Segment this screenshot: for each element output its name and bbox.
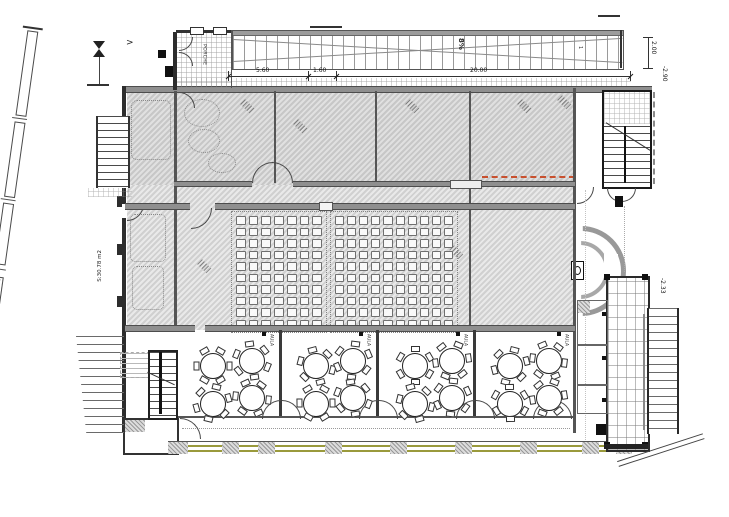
auditorium-seat: [432, 308, 441, 317]
service-hatch: [578, 301, 590, 313]
auditorium-seat: [261, 308, 271, 317]
boundary-wall-segment: [0, 203, 14, 266]
auditorium-seat: [420, 262, 429, 271]
wall-left-pilaster: [117, 296, 123, 307]
auditorium-seat: [236, 239, 246, 248]
service-room: [577, 384, 608, 414]
dim-porch-width: 5.60: [256, 68, 269, 74]
auditorium-seat: [287, 297, 297, 306]
ramp-top-edge: [233, 31, 623, 36]
auditorium-seat: [420, 239, 429, 248]
auditorium-seat: [274, 274, 284, 283]
chair: [232, 391, 239, 401]
stair-flight-dashed: [120, 352, 150, 378]
auditorium-seat: [300, 297, 310, 306]
dim-ramp-width: 2.00: [650, 41, 656, 54]
stair-area-label: S:30.78 m2: [98, 250, 104, 282]
auditorium-seat: [261, 251, 271, 260]
auditorium-seat: [274, 262, 284, 271]
classroom-label-marker: [456, 332, 460, 336]
auditorium-seat: [300, 274, 310, 283]
auditorium-seat: [359, 285, 368, 294]
boundary-gravel-segment: [0, 276, 4, 335]
auditorium-seat: [420, 228, 429, 237]
ramp-note: 1: [577, 46, 582, 49]
ramp: [232, 30, 624, 70]
auditorium-seat: [287, 239, 297, 248]
chair: [226, 361, 232, 370]
chair: [193, 361, 199, 370]
auditorium-seat: [383, 216, 392, 225]
auditorium-seat: [236, 274, 246, 283]
wall-hall-north-c: [331, 203, 575, 210]
facade-pillar: [168, 442, 188, 454]
auditorium-seat: [420, 308, 429, 317]
porch-left-wall: [173, 32, 177, 90]
classroom-label-marker: [359, 332, 363, 336]
round-table: [239, 348, 265, 374]
auditorium-seat: [396, 262, 405, 271]
overline-mark: [310, 26, 342, 28]
auditorium-seat: [396, 274, 405, 283]
chair: [529, 354, 536, 364]
auditorium-seat: [444, 239, 453, 248]
stair-bottom-left-stringer: [159, 352, 162, 414]
auditorium-seat: [274, 285, 284, 294]
overline-mark: [598, 15, 620, 17]
furniture-outline: [131, 100, 171, 160]
auditorium-seat: [236, 216, 246, 225]
facade-pillar: [455, 442, 472, 454]
survey-stem: [99, 57, 100, 85]
auditorium-seat: [335, 285, 344, 294]
auditorium-seat: [359, 262, 368, 271]
chair: [505, 383, 514, 389]
auditorium-seat: [359, 308, 368, 317]
furniture-outline: [208, 153, 236, 173]
chair: [415, 415, 425, 423]
stair-top-right: [602, 90, 652, 189]
auditorium-seat: [261, 274, 271, 283]
facade-pillar: [222, 442, 239, 454]
survey-base: [87, 84, 109, 86]
dimension-line: [228, 76, 630, 77]
auditorium-seat: [408, 262, 417, 271]
hall-double-door-leaf: [319, 202, 333, 211]
auditorium-seat: [371, 285, 380, 294]
auditorium-seat: [287, 251, 297, 260]
auditorium-seat: [383, 297, 392, 306]
auditorium-seat: [420, 274, 429, 283]
level-walkway: -2.33: [659, 278, 665, 294]
stair-landing: [604, 92, 650, 124]
classroom-label: AULA: [563, 334, 568, 346]
auditorium-seat: [236, 251, 246, 260]
auditorium-seat: [300, 251, 310, 260]
corridor-centerline: [182, 428, 570, 429]
boundary-joint-tick: [0, 267, 6, 270]
auditorium-seat: [249, 216, 259, 225]
auditorium-seat: [335, 262, 344, 271]
chair: [446, 411, 456, 418]
auditorium-seat: [444, 308, 453, 317]
facade-pillar: [258, 442, 275, 454]
auditorium-seat: [335, 239, 344, 248]
auditorium-seat: [420, 285, 429, 294]
auditorium-seat: [371, 262, 380, 271]
auditorium-seat: [274, 228, 284, 237]
auditorium-seat: [287, 262, 297, 271]
chair: [346, 378, 356, 385]
porch-window: [190, 27, 204, 35]
wall-hall-south-b: [205, 325, 575, 332]
auditorium-seat: [347, 228, 356, 237]
auditorium-seat: [359, 251, 368, 260]
walkway-base: [604, 444, 648, 449]
wall-hall-north-a: [125, 203, 190, 210]
porch-label: PORCHE: [201, 44, 206, 66]
auditorium-seat: [408, 239, 417, 248]
auditorium-seat: [261, 216, 271, 225]
lobby-door-tag: [615, 196, 623, 207]
auditorium-seat: [312, 262, 322, 271]
auditorium-seat: [312, 285, 322, 294]
auditorium-seat: [408, 274, 417, 283]
auditorium-seat: [249, 274, 259, 283]
auditorium-seat: [236, 308, 246, 317]
auditorium-seat: [444, 251, 453, 260]
auditorium-seat: [420, 251, 429, 260]
wall-hall-north-b: [215, 203, 320, 210]
auditorium-seat: [359, 274, 368, 283]
auditorium-seat: [420, 297, 429, 306]
dim-ramp-length: 20.00: [470, 68, 487, 74]
auditorium-seat: [432, 216, 441, 225]
wall-rooms-south-a: [174, 181, 252, 187]
lobby-guideline: [624, 206, 625, 272]
walkway-corner: [604, 274, 610, 280]
chair: [265, 395, 272, 405]
auditorium-seat: [261, 262, 271, 271]
chair: [465, 353, 472, 363]
site-boundary: [0, 26, 42, 517]
classroom-label: AULA: [268, 334, 273, 346]
auditorium-seat: [300, 308, 310, 317]
auditorium-seat: [312, 274, 322, 283]
walkway-corner: [642, 274, 648, 280]
level-ramp-base: -2.90: [661, 66, 667, 82]
auditorium-seat: [287, 308, 297, 317]
auditorium-seat: [396, 285, 405, 294]
auditorium-seat: [300, 285, 310, 294]
stair-upper-left: [96, 116, 130, 188]
auditorium-seat: [335, 216, 344, 225]
auditorium-seat: [359, 228, 368, 237]
stair-bottom-right: [647, 308, 679, 434]
door-recess: [450, 180, 482, 189]
auditorium-seat: [396, 297, 405, 306]
auditorium-seat: [347, 308, 356, 317]
stair-enclosure-ties: [650, 92, 655, 184]
classroom-label-marker: [557, 332, 561, 336]
auditorium-seat: [371, 228, 380, 237]
auditorium-seat: [236, 262, 246, 271]
floor-plan-canvas: PORCHE 8% 1 5.60 1.60 20.00 2.00 -2.90: [0, 0, 729, 517]
auditorium-seat: [408, 308, 417, 317]
auditorium-seat: [444, 297, 453, 306]
auditorium-seat: [335, 308, 344, 317]
auditorium-seat: [274, 297, 284, 306]
chair: [249, 373, 259, 380]
auditorium-seat: [261, 297, 271, 306]
stair-bottom-right-rail: [643, 314, 645, 430]
facade-pillar: [325, 442, 342, 454]
auditorium-seat: [312, 228, 322, 237]
auditorium-seat: [383, 308, 392, 317]
chair: [529, 396, 536, 406]
auditorium-seat: [383, 285, 392, 294]
auditorium-seat: [444, 262, 453, 271]
porch-tag: [158, 50, 166, 58]
porch-window: [213, 27, 227, 35]
auditorium-seat: [432, 251, 441, 260]
auditorium-seat: [347, 262, 356, 271]
classroom-label-marker: [262, 332, 266, 336]
auditorium-seat: [261, 285, 271, 294]
auditorium-seat: [359, 297, 368, 306]
auditorium-seat: [347, 251, 356, 260]
auditorium-seat: [261, 228, 271, 237]
auditorium-seat: [408, 297, 417, 306]
stage-outline: [132, 266, 164, 310]
wall-rooms-south-c: [480, 181, 575, 187]
partition-room3-hall: [469, 91, 471, 330]
facade-pillar: [582, 442, 599, 454]
furniture-outline: [188, 129, 220, 153]
auditorium-seat: [347, 274, 356, 283]
wall-left-pilaster: [117, 244, 123, 255]
auditorium-seat: [444, 274, 453, 283]
stair-wide-exterior: [76, 336, 124, 436]
dim-cap: [643, 68, 653, 69]
chair: [204, 415, 214, 423]
auditorium-seat-block-left: [234, 214, 324, 330]
auditorium-seat: [249, 285, 259, 294]
wall-hall-south-a: [125, 325, 195, 332]
dim-cap: [643, 37, 653, 38]
auditorium-seat: [287, 285, 297, 294]
ramp-end-wall: [620, 30, 622, 68]
boundary-wall-segment: [15, 30, 38, 117]
auditorium-seat: [408, 251, 417, 260]
auditorium-seat: [312, 239, 322, 248]
auditorium-seat: [261, 239, 271, 248]
auditorium-seat: [347, 216, 356, 225]
facade-pillar: [520, 442, 537, 454]
auditorium-seat: [312, 251, 322, 260]
auditorium-seat: [312, 216, 322, 225]
auditorium-seat: [347, 297, 356, 306]
survey-symbol: [93, 41, 105, 49]
wall-rooms-south-b: [293, 181, 450, 187]
auditorium-seat: [274, 239, 284, 248]
auditorium-seat: [359, 216, 368, 225]
partition-left-strip: [174, 91, 177, 330]
auditorium-seat: [274, 308, 284, 317]
auditorium-seat: [383, 228, 392, 237]
lobby-door-swing: [622, 188, 636, 202]
auditorium-seat-block-right: [333, 214, 455, 330]
auditorium-seat: [312, 308, 322, 317]
auditorium-seat: [371, 216, 380, 225]
auditorium-seat: [383, 274, 392, 283]
ramp-diagonal: [233, 39, 622, 63]
auditorium-seat: [408, 228, 417, 237]
porch-tag: [165, 66, 173, 77]
chair: [297, 399, 303, 408]
wall-right: [573, 88, 576, 433]
auditorium-seat: [432, 297, 441, 306]
auditorium-seat: [432, 262, 441, 271]
auditorium-seat: [432, 285, 441, 294]
dashed-utility-line: [482, 176, 575, 178]
partition-room2-3: [375, 91, 377, 183]
auditorium-seat: [444, 228, 453, 237]
auditorium-seat: [396, 228, 405, 237]
auditorium-seat: [287, 216, 297, 225]
auditorium-seat: [312, 297, 322, 306]
service-room: [577, 344, 608, 386]
facade-left-corner-hatch: [125, 420, 145, 432]
auditorium-seat: [335, 228, 344, 237]
auditorium-seat: [396, 251, 405, 260]
auditorium-seat: [359, 239, 368, 248]
auditorium-seat: [236, 228, 246, 237]
classroom-label: AULA: [365, 334, 370, 346]
auditorium-seat: [444, 216, 453, 225]
auditorium-seat: [300, 228, 310, 237]
auditorium-seat: [347, 285, 356, 294]
auditorium-seat: [274, 251, 284, 260]
auditorium-seat: [396, 239, 405, 248]
boundary-joint-tick: [1, 198, 16, 201]
auditorium-seat: [300, 239, 310, 248]
chair: [411, 346, 420, 352]
auditorium-seat: [287, 274, 297, 283]
auditorium-seat: [249, 228, 259, 237]
auditorium-seat: [249, 308, 259, 317]
auditorium-seat: [383, 262, 392, 271]
auditorium-seat: [249, 297, 259, 306]
auditorium-seat: [300, 262, 310, 271]
auditorium-seat: [371, 239, 380, 248]
auditorium-seat: [287, 228, 297, 237]
stage-outline: [130, 214, 166, 262]
auditorium-seat: [347, 239, 356, 248]
auditorium-seat: [371, 308, 380, 317]
auditorium-seat: [249, 251, 259, 260]
dim-gap: 1.60: [313, 68, 326, 74]
auditorium-seat: [408, 216, 417, 225]
ramp-slope-label: 8%: [457, 38, 464, 50]
auditorium-seat: [236, 297, 246, 306]
meter-box: [596, 424, 606, 435]
auditorium-seat: [274, 216, 284, 225]
auditorium-seat: [444, 285, 453, 294]
auditorium-seat: [432, 274, 441, 283]
auditorium-seat: [396, 308, 405, 317]
north-arrow: >: [126, 39, 134, 48]
auditorium-seat: [249, 239, 259, 248]
auditorium-seat: [335, 251, 344, 260]
chair: [350, 341, 360, 348]
auditorium-seat: [432, 228, 441, 237]
auditorium-seat: [371, 274, 380, 283]
survey-symbol: [93, 49, 105, 57]
boundary-wall-segment: [4, 121, 25, 198]
auditorium-seat: [420, 216, 429, 225]
auditorium-seat: [335, 274, 344, 283]
chair: [506, 416, 515, 422]
stair-upper-left-landing: [88, 188, 132, 197]
dim-ramp-width-line: [648, 37, 649, 68]
auditorium-seat: [371, 297, 380, 306]
boundary-joint-tick: [12, 117, 27, 120]
stairhall-door-swing: [180, 418, 201, 439]
auditorium-seat: [383, 239, 392, 248]
auditorium-seat: [236, 285, 246, 294]
auditorium-seat: [300, 216, 310, 225]
auditorium-seat: [383, 251, 392, 260]
auditorium-seat: [408, 285, 417, 294]
auditorium-seat: [396, 216, 405, 225]
auditorium-seat: [335, 297, 344, 306]
auditorium-seat: [249, 262, 259, 271]
boundary-end-tick: [23, 26, 43, 31]
facade-pillar: [390, 442, 407, 454]
facade-band: [168, 441, 632, 454]
auditorium-seat: [432, 239, 441, 248]
auditorium-seat: [371, 251, 380, 260]
